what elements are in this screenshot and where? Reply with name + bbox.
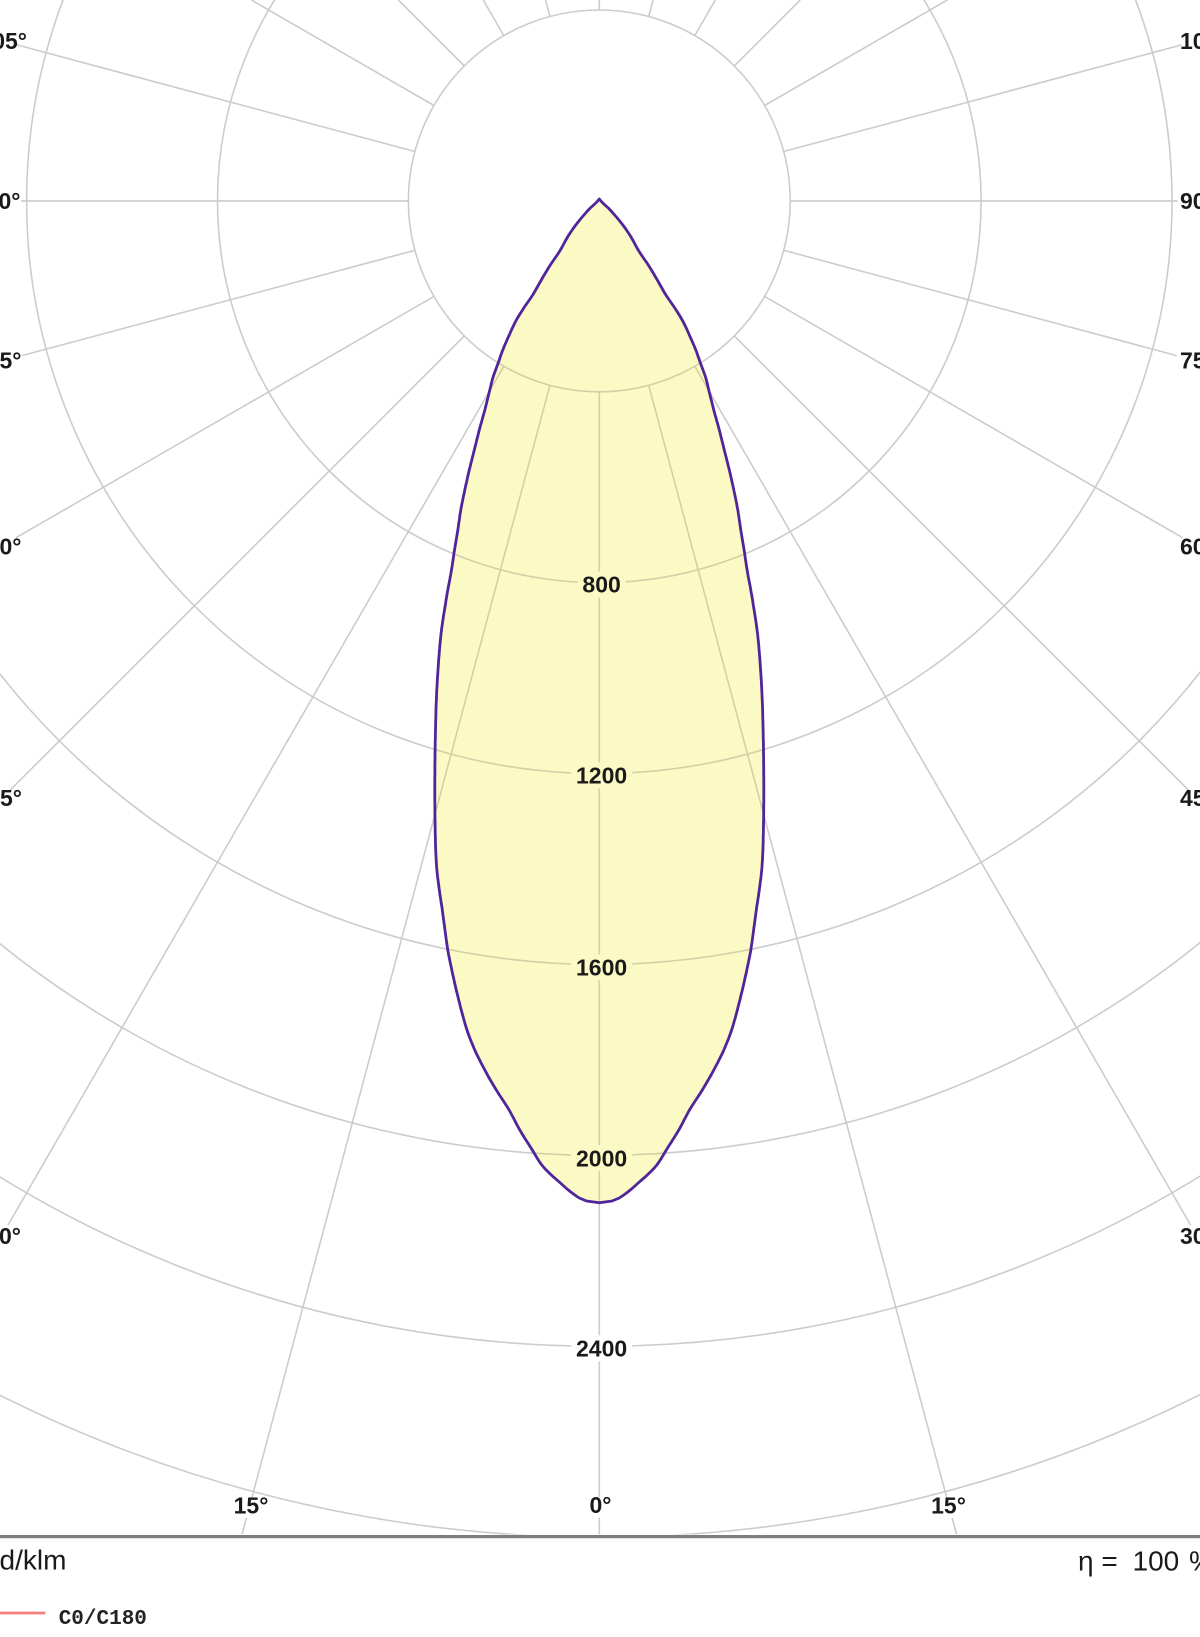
svg-text:2400: 2400 [576,1335,627,1361]
svg-text:2000: 2000 [576,1145,627,1171]
svg-text:0°: 0° [590,1492,612,1518]
svg-text:75°: 75° [0,348,22,374]
svg-text:45°: 45° [0,785,22,811]
svg-text:30°: 30° [1180,1223,1200,1249]
svg-text:90°: 90° [1180,188,1200,214]
svg-text:45°: 45° [1180,785,1200,811]
svg-text:105°: 105° [1180,28,1200,54]
svg-text:105°: 105° [0,28,27,54]
svg-text:60°: 60° [0,534,22,560]
svg-text:30°: 30° [0,1223,21,1249]
svg-text:15°: 15° [234,1493,269,1519]
svg-text:1600: 1600 [576,954,627,980]
svg-text:1200: 1200 [576,763,627,789]
svg-text:90°: 90° [0,188,21,214]
svg-text:15°: 15° [931,1493,966,1519]
svg-text:C0/C180: C0/C180 [59,1608,147,1631]
svg-text:cd/klm: cd/klm [0,1545,66,1576]
svg-text:60°: 60° [1180,534,1200,560]
svg-text:800: 800 [582,572,620,598]
svg-text:75°: 75° [1180,348,1200,374]
